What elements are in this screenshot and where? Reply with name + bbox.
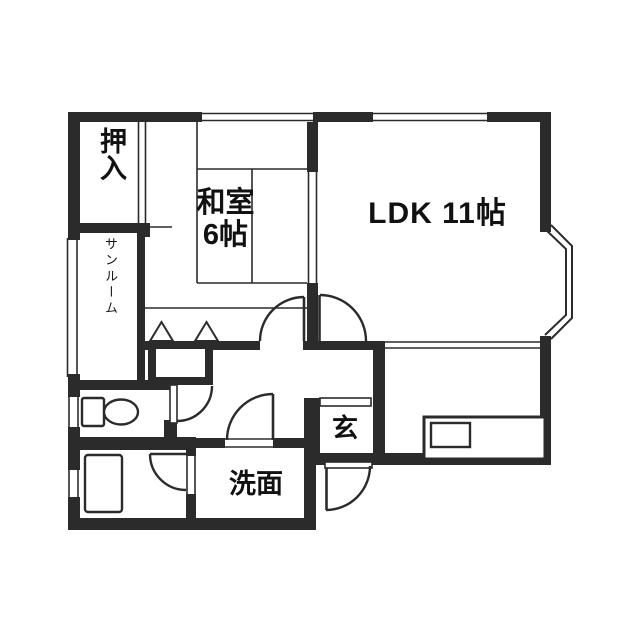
folding-door-triangles [150,322,218,341]
wall [68,112,80,240]
wall [303,341,385,350]
bathtub-icon [85,455,122,512]
ldk-door [320,295,367,341]
wall [307,122,318,172]
wall [304,438,316,530]
genkan-step [320,398,371,406]
window-bath [67,470,80,497]
triangle-marker [150,322,173,341]
room-label-senmen: 洗面 [208,469,304,499]
wall [307,283,318,341]
room-label-ldk: LDK 11帖 [330,197,545,231]
kitchen-open-boundary [385,342,540,348]
wall [72,112,202,122]
window-toilet [67,397,80,427]
entrance-door [325,462,372,510]
triangle-marker [195,322,218,341]
door-arc [177,386,212,421]
oshiire-fusuma [137,122,147,223]
room-label-oshiire: 押入 [90,127,126,219]
senmen-door [227,394,273,440]
bay-window-outer [551,225,572,339]
wall [313,112,373,122]
room-label-genkan: 玄 [326,414,364,443]
door-leaf [170,385,177,423]
toilet-tank [82,398,104,426]
room-label-sunroom: サンルーム [95,237,117,349]
toilet-icon [82,398,138,426]
sunroom-glass-wall [68,238,78,377]
entrance-door-arc [326,466,370,510]
door-arc [260,297,304,341]
washitsu-door [260,297,304,341]
wall [196,438,225,448]
kitchen-sink-icon [431,423,470,447]
wall [137,233,145,390]
door-arc [150,454,186,490]
entrance-threshold [325,462,372,468]
room-label-washitsu: 和室 6帖 [158,187,293,252]
kitchen-counter-icon [424,417,545,459]
window-top-washitsu [202,112,313,122]
window-top-ldk [373,112,487,122]
washitsu-size: 6帖 [158,219,293,251]
toilet-bowl [104,400,138,425]
wall [68,223,147,233]
washitsu-ldk-sliding-door [307,172,318,283]
wall [373,341,385,463]
bay-window-inner [545,229,566,335]
floorplan: 押入 サンルーム 和室 6帖 LDK 11帖 玄 洗面 [0,0,640,640]
bath-door [150,454,186,490]
door-arc [227,394,273,440]
toilet-door [170,385,212,423]
wall [68,437,196,450]
washitsu-name: 和室 [158,187,293,219]
door-arc [320,295,366,341]
bay-window [545,225,572,339]
hall-storage-box [152,345,209,381]
